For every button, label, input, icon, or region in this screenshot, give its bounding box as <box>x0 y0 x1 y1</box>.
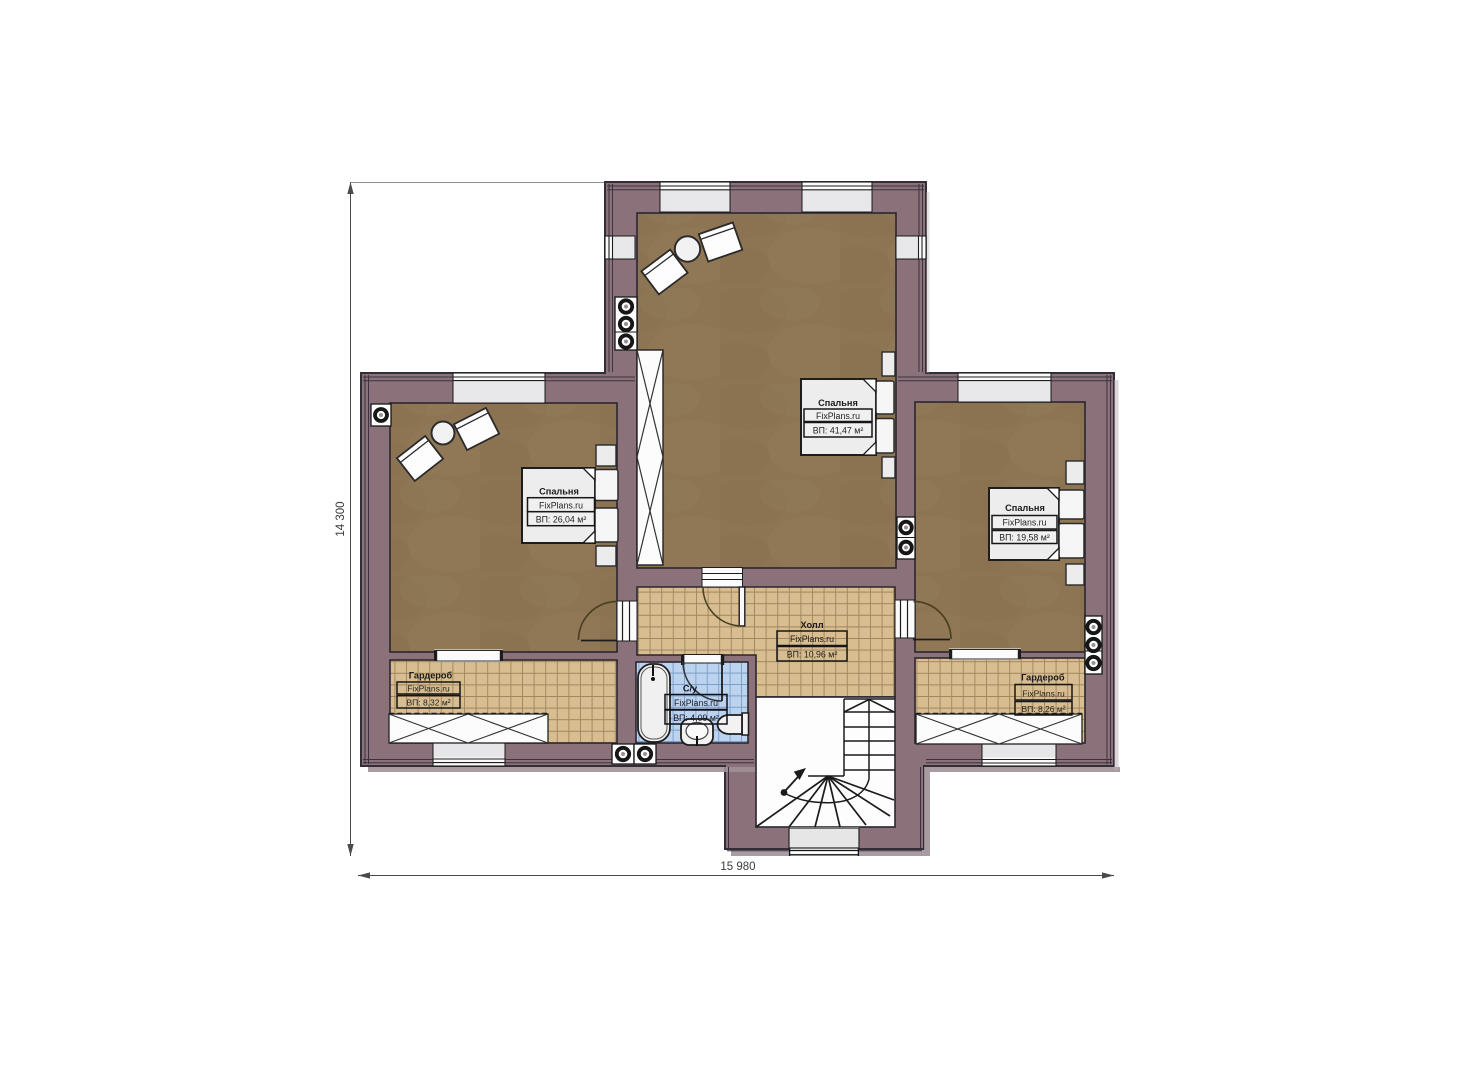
svg-text:ВП: 41,47 м²: ВП: 41,47 м² <box>813 426 864 436</box>
svg-text:FixPlans.ru: FixPlans.ru <box>790 634 834 644</box>
svg-text:Спальня: Спальня <box>818 398 858 408</box>
svg-text:ВП: 19,58 м²: ВП: 19,58 м² <box>999 533 1050 543</box>
svg-text:Гардероб: Гардероб <box>1021 673 1065 683</box>
svg-text:FixPlans.ru: FixPlans.ru <box>816 411 860 421</box>
svg-text:Спальня: Спальня <box>1005 503 1045 513</box>
svg-text:FixPlans.ru: FixPlans.ru <box>674 698 718 708</box>
svg-text:Спальня: Спальня <box>539 487 579 497</box>
svg-text:С/у: С/у <box>683 684 698 694</box>
svg-text:ВП: 8,26 м²: ВП: 8,26 м² <box>1021 704 1065 714</box>
svg-text:15 980: 15 980 <box>720 861 755 873</box>
svg-text:Холл: Холл <box>800 620 823 630</box>
svg-text:FixPlans.ru: FixPlans.ru <box>1003 518 1047 528</box>
svg-text:ВП: 10,96 м²: ВП: 10,96 м² <box>787 650 838 660</box>
svg-text:14 300: 14 300 <box>335 501 347 536</box>
svg-text:ВП: 4,09 м²: ВП: 4,09 м² <box>673 713 719 723</box>
svg-text:Гардероб: Гардероб <box>409 671 453 681</box>
svg-text:FixPlans.ru: FixPlans.ru <box>1022 688 1065 698</box>
svg-text:ВП: 8,32 м²: ВП: 8,32 м² <box>406 697 450 707</box>
svg-text:ВП: 26,04 м²: ВП: 26,04 м² <box>536 515 587 525</box>
svg-text:FixPlans.ru: FixPlans.ru <box>407 684 450 694</box>
svg-text:FixPlans.ru: FixPlans.ru <box>539 501 583 511</box>
